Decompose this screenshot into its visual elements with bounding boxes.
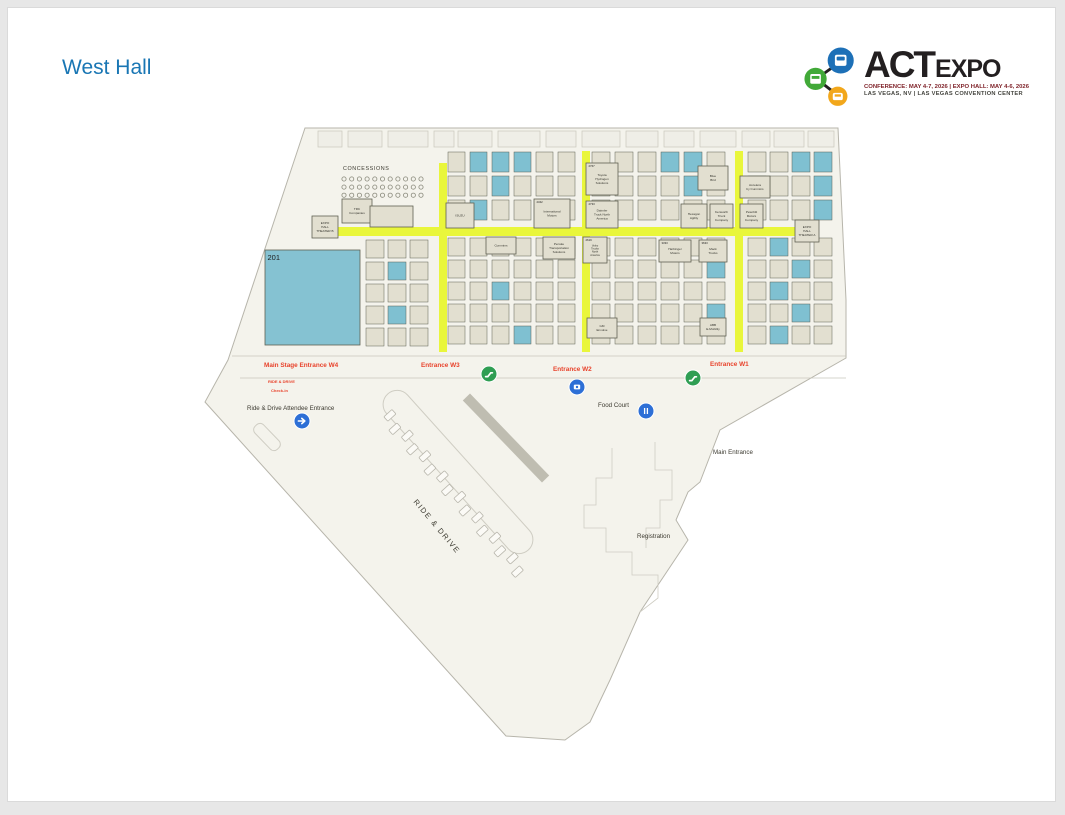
booth bbox=[470, 176, 487, 196]
booth bbox=[470, 304, 487, 322]
booth bbox=[638, 176, 656, 196]
escalator-icon[interactable] bbox=[685, 370, 701, 386]
booth bbox=[748, 152, 766, 172]
svg-text:THEATER A: THEATER A bbox=[799, 233, 817, 237]
svg-text:Company: Company bbox=[715, 218, 729, 222]
booth-expo-hall-theater-b[interactable]: EXPOHALLTHEATER B bbox=[312, 216, 338, 238]
booth-blue-bird[interactable]: BlueBird bbox=[698, 166, 728, 190]
booth bbox=[558, 282, 575, 300]
booth bbox=[661, 304, 679, 322]
booth bbox=[492, 326, 509, 344]
meeting-room bbox=[348, 131, 382, 147]
booth bbox=[661, 152, 679, 172]
booth bbox=[748, 304, 766, 322]
booth bbox=[410, 262, 428, 280]
booth bbox=[792, 260, 810, 278]
logo-act: ACT bbox=[864, 50, 934, 80]
meeting-room bbox=[626, 131, 658, 147]
svg-text:2767: 2767 bbox=[589, 164, 596, 168]
booth bbox=[615, 238, 633, 256]
logo-text-block: ACT EXPO CONFERENCE: MAY 4-7, 2026 | EXP… bbox=[864, 44, 1029, 97]
svg-text:E-Mobility: E-Mobility bbox=[706, 327, 720, 331]
booth bbox=[558, 176, 575, 196]
meeting-room bbox=[742, 131, 770, 147]
booth bbox=[770, 176, 788, 196]
booth bbox=[514, 282, 531, 300]
booth bbox=[748, 238, 766, 256]
booth bbox=[748, 326, 766, 344]
meeting-room bbox=[318, 131, 342, 147]
booth-volvo-trucks-north-america[interactable]: 2619VolvoTrucksNorthAmerica bbox=[583, 237, 607, 263]
page-title: West Hall bbox=[62, 56, 151, 80]
booth bbox=[514, 260, 531, 278]
entrance-label: Main Stage Entrance W4 bbox=[264, 362, 339, 369]
booth bbox=[558, 304, 575, 322]
booth bbox=[366, 328, 384, 346]
booth bbox=[770, 238, 788, 256]
booth-trc-companies[interactable]: TRCCompanies bbox=[342, 199, 372, 223]
arrow-icon[interactable] bbox=[294, 413, 310, 429]
booth bbox=[388, 240, 406, 258]
booth bbox=[470, 282, 487, 300]
booth bbox=[536, 152, 553, 172]
area-label: CONCESSIONS bbox=[343, 166, 389, 172]
booth bbox=[448, 282, 465, 300]
booth bbox=[638, 326, 656, 344]
booth bbox=[388, 328, 406, 346]
meeting-room bbox=[546, 131, 576, 147]
meeting-room bbox=[458, 131, 492, 147]
booth bbox=[615, 282, 633, 300]
svg-text:by Cummins: by Cummins bbox=[746, 187, 764, 191]
svg-text:201: 201 bbox=[268, 253, 281, 262]
area-label: Main Entrance bbox=[713, 449, 753, 456]
booth-toyota-hydrogen-solutions[interactable]: 2767ToyotaHydrogenSolutions bbox=[586, 163, 618, 195]
camera-icon[interactable] bbox=[569, 379, 585, 395]
logo-tagline-venue: LAS VEGAS, NV | LAS VEGAS CONVENTION CEN… bbox=[864, 91, 1029, 97]
booth bbox=[410, 240, 428, 258]
booth bbox=[770, 326, 788, 344]
svg-text:Cummins: Cummins bbox=[494, 244, 508, 248]
svg-text:2342: 2342 bbox=[537, 200, 544, 204]
booth bbox=[558, 260, 575, 278]
booth-isuzu[interactable]: ISUZU bbox=[446, 203, 474, 228]
booth bbox=[514, 152, 531, 172]
svg-text:Trucks: Trucks bbox=[708, 251, 718, 255]
booth bbox=[448, 152, 465, 172]
highlighted-aisle bbox=[439, 163, 447, 352]
booth-daimler-truck-north-america[interactable]: 2733DaimlerTruck NorthAmerica bbox=[586, 201, 618, 228]
svg-text:THEATER B: THEATER B bbox=[316, 229, 333, 233]
booth bbox=[470, 152, 487, 172]
booth-accelera-by-cummins[interactable]: Acceleraby Cummins bbox=[740, 176, 770, 198]
booth bbox=[770, 282, 788, 300]
booth bbox=[388, 262, 406, 280]
booth bbox=[814, 304, 832, 322]
act-expo-logo: ACT EXPO CONFERENCE: MAY 4-7, 2026 | EXP… bbox=[803, 44, 1029, 106]
booth-peterbilt-motors-company[interactable]: PeterbiltMotorsCompany bbox=[740, 204, 763, 228]
logo-expo: EXPO bbox=[935, 59, 1000, 79]
booth bbox=[792, 326, 810, 344]
booth bbox=[814, 282, 832, 300]
meeting-room bbox=[664, 131, 694, 147]
booth bbox=[492, 260, 509, 278]
escalator-icon[interactable] bbox=[481, 366, 497, 382]
booth-hexagon-agility[interactable]: HexagonAgility bbox=[681, 204, 707, 228]
booth bbox=[615, 260, 633, 278]
svg-text:Motors: Motors bbox=[670, 251, 680, 255]
booth bbox=[366, 284, 384, 302]
booth bbox=[470, 326, 487, 344]
entrance-label: RIDE & DRIVE bbox=[268, 379, 295, 384]
svg-text:Solutions: Solutions bbox=[596, 181, 609, 185]
booth-gm-envolve[interactable]: GMEnvolve bbox=[587, 318, 617, 338]
booth bbox=[514, 200, 531, 220]
booth bbox=[492, 200, 509, 220]
meeting-room bbox=[498, 131, 540, 147]
booth bbox=[792, 200, 810, 220]
booth bbox=[388, 284, 406, 302]
booth bbox=[410, 328, 428, 346]
booth bbox=[366, 306, 384, 324]
booth-harbinger-motors[interactable]: 3333HarbingerMotors bbox=[659, 240, 691, 262]
booth bbox=[814, 176, 832, 196]
booth bbox=[536, 260, 553, 278]
booth bbox=[366, 240, 384, 258]
entrance-label: Entrance W1 bbox=[710, 361, 749, 368]
booth bbox=[514, 304, 531, 322]
booth bbox=[792, 152, 810, 172]
booth bbox=[536, 282, 553, 300]
booth bbox=[448, 238, 465, 256]
booth bbox=[661, 200, 679, 220]
booth bbox=[388, 306, 406, 324]
booth bbox=[684, 326, 702, 344]
booth bbox=[661, 282, 679, 300]
booth bbox=[814, 200, 832, 220]
booth bbox=[748, 260, 766, 278]
svg-text:Company: Company bbox=[745, 218, 759, 222]
booth bbox=[492, 304, 509, 322]
booth bbox=[792, 282, 810, 300]
entrance-label: Check-in bbox=[271, 388, 288, 393]
booth bbox=[638, 260, 656, 278]
logo-tagline-dates: CONFERENCE: MAY 4-7, 2026 | EXPO HALL: M… bbox=[864, 84, 1029, 90]
meeting-room bbox=[388, 131, 428, 147]
booth bbox=[707, 282, 725, 300]
booth bbox=[536, 176, 553, 196]
booth bbox=[707, 260, 725, 278]
booth bbox=[814, 152, 832, 172]
entrance-label: Entrance W2 bbox=[553, 366, 592, 373]
svg-text:3333: 3333 bbox=[662, 241, 669, 245]
booth bbox=[492, 282, 509, 300]
svg-text:Envolve: Envolve bbox=[596, 328, 607, 332]
booth bbox=[770, 152, 788, 172]
logo-wordmark: ACT EXPO bbox=[864, 50, 1029, 80]
meeting-room bbox=[582, 131, 620, 147]
booth bbox=[792, 176, 810, 196]
booth bbox=[684, 282, 702, 300]
booth bbox=[638, 304, 656, 322]
booth-kenworth-truck-company[interactable]: KenworthTruckCompany bbox=[710, 204, 733, 228]
booth bbox=[514, 238, 531, 256]
booth bbox=[792, 304, 810, 322]
svg-text:Solutions: Solutions bbox=[553, 250, 566, 254]
svg-text:Bird: Bird bbox=[710, 178, 716, 182]
booth bbox=[514, 176, 531, 196]
booth bbox=[558, 152, 575, 172]
svg-text:3633: 3633 bbox=[702, 241, 709, 245]
booth bbox=[638, 200, 656, 220]
svg-text:2619: 2619 bbox=[586, 238, 593, 242]
booth bbox=[661, 176, 679, 196]
booth-mack-trucks[interactable]: 3633MackTrucks bbox=[699, 240, 727, 262]
entrance-label: Entrance W3 bbox=[421, 362, 460, 369]
svg-text:America: America bbox=[590, 253, 600, 257]
booth bbox=[558, 326, 575, 344]
booth bbox=[448, 304, 465, 322]
booth bbox=[536, 304, 553, 322]
booth bbox=[410, 306, 428, 324]
booth bbox=[684, 260, 702, 278]
area-label: Registration bbox=[637, 533, 671, 540]
booth bbox=[448, 326, 465, 344]
svg-text:Agility: Agility bbox=[690, 216, 699, 220]
booth bbox=[410, 284, 428, 302]
svg-text:Motors: Motors bbox=[547, 214, 557, 218]
booth bbox=[770, 260, 788, 278]
booth bbox=[448, 176, 465, 196]
booth bbox=[814, 260, 832, 278]
booth bbox=[770, 304, 788, 322]
booth bbox=[661, 260, 679, 278]
booth bbox=[448, 260, 465, 278]
svg-text:Companies: Companies bbox=[349, 211, 365, 215]
booth bbox=[492, 152, 509, 172]
meeting-room bbox=[774, 131, 804, 147]
meeting-room bbox=[808, 131, 834, 147]
area-label: Food Court bbox=[598, 402, 629, 409]
booth-expo-hall-theater-a[interactable]: EXPOHALLTHEATER A bbox=[795, 220, 819, 242]
booth bbox=[638, 152, 656, 172]
svg-text:ISUZU: ISUZU bbox=[455, 214, 464, 218]
booth bbox=[638, 238, 656, 256]
logo-vehicle-icons bbox=[803, 44, 861, 106]
area-label: Ride & Drive Attendee Entrance bbox=[247, 405, 335, 412]
booth-international-motors[interactable]: 2342InternationalMotors bbox=[534, 199, 570, 228]
booth bbox=[470, 260, 487, 278]
utensils-icon[interactable] bbox=[638, 403, 654, 419]
booth bbox=[814, 326, 832, 344]
booth-abb-e-mobility[interactable]: ABBE-Mobility bbox=[700, 318, 726, 336]
booth bbox=[638, 282, 656, 300]
booth bbox=[470, 238, 487, 256]
booth-penske-transportation-solutions[interactable]: PenskeTransportationSolutions bbox=[543, 237, 575, 259]
svg-text:America: America bbox=[596, 217, 608, 221]
booth bbox=[748, 282, 766, 300]
booth bbox=[684, 304, 702, 322]
booth bbox=[592, 282, 610, 300]
booth bbox=[492, 176, 509, 196]
booth-cummins[interactable]: Cummins bbox=[486, 237, 516, 254]
svg-text:2733: 2733 bbox=[589, 202, 596, 206]
booth bbox=[770, 200, 788, 220]
booth bbox=[366, 262, 384, 280]
booth bbox=[661, 326, 679, 344]
booth bbox=[514, 326, 531, 344]
floor-plan-map: 201TRCCompaniesEXPOHALLTHEATER BISUZU234… bbox=[0, 0, 1065, 815]
meeting-room bbox=[434, 131, 454, 147]
booth bbox=[615, 304, 633, 322]
booth bbox=[615, 326, 633, 344]
booth-201[interactable]: 201 bbox=[265, 250, 360, 345]
booth-booth bbox=[370, 206, 413, 227]
booth bbox=[536, 326, 553, 344]
meeting-room bbox=[700, 131, 736, 147]
